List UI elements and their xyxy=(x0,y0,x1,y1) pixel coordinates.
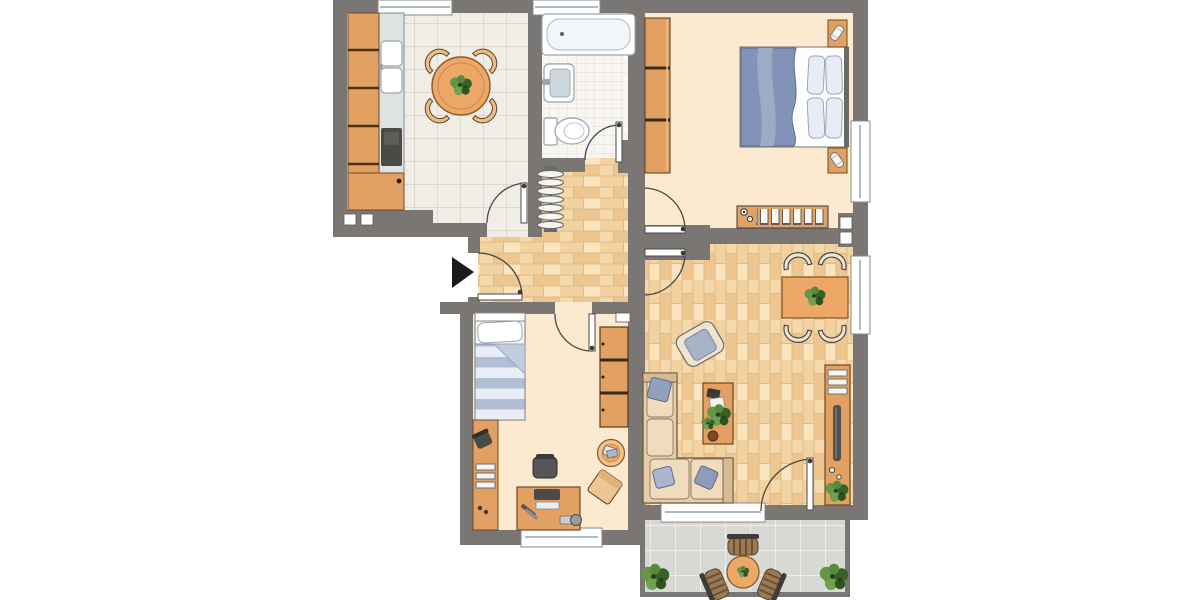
wall-balcony-right xyxy=(845,520,850,597)
bowl xyxy=(708,431,718,441)
niche-kitchen-2 xyxy=(361,214,373,225)
wall-balcony-bottom xyxy=(640,592,850,597)
bed-headboard xyxy=(475,313,525,321)
hallway-floor-lower xyxy=(478,237,630,302)
keyboard xyxy=(536,502,559,509)
radiator xyxy=(737,206,828,228)
sofa-cushion xyxy=(652,466,675,489)
wall-kitchen-left xyxy=(333,0,347,232)
bedroom-wardrobe xyxy=(645,18,670,173)
monitor xyxy=(534,489,560,500)
entrance-arrow xyxy=(452,257,474,288)
wash-basin xyxy=(542,64,574,102)
childrens-wardrobe xyxy=(600,327,628,427)
corner-cabinet xyxy=(348,173,404,210)
toilet xyxy=(544,118,589,145)
office-chair xyxy=(533,454,557,478)
wall-kitchen-bottom-right xyxy=(433,223,487,237)
living-room-side-window xyxy=(851,256,870,334)
niche-chimney-1 xyxy=(840,217,852,229)
shelf-slats xyxy=(476,464,495,488)
childrens-room-window xyxy=(521,528,602,547)
desk-lamp-base xyxy=(571,515,582,526)
niche-kitchen-1 xyxy=(344,214,356,225)
wall-bedroom-living-divider xyxy=(710,228,853,244)
tv xyxy=(833,405,841,461)
living-room-bottom-window xyxy=(661,503,765,522)
wall-shelf-unit xyxy=(471,420,498,530)
wall-balcony-left xyxy=(640,520,645,597)
bedroom-window xyxy=(851,121,870,202)
double-bed xyxy=(740,47,849,147)
side-table xyxy=(598,440,625,467)
headboard xyxy=(844,47,849,147)
wall-childrens-top-right xyxy=(592,302,628,314)
sofa-armrest xyxy=(723,458,733,503)
coat-rack xyxy=(538,166,564,232)
coffee-table xyxy=(701,383,733,444)
wall-entrance-upper xyxy=(468,237,480,253)
niche-childrens xyxy=(616,313,630,322)
bathtub xyxy=(542,14,635,55)
sideboard-tv xyxy=(825,365,850,505)
page xyxy=(0,0,1200,600)
sofa-cushion xyxy=(647,377,672,402)
childrens-door-threshold xyxy=(555,302,592,314)
floor-plan xyxy=(0,0,1200,600)
magazine xyxy=(606,449,617,458)
wall-childrens-left xyxy=(460,310,473,545)
balcony-chair-north xyxy=(727,534,759,555)
niche-chimney-2 xyxy=(840,232,852,244)
kitchen-door-threshold xyxy=(487,223,528,237)
single-bed xyxy=(475,313,525,420)
bathroom-window xyxy=(533,0,600,15)
stove-detail xyxy=(384,132,399,145)
cabinet-handle xyxy=(397,179,402,184)
bed-pillow xyxy=(478,321,523,343)
wall-childrens-top-left xyxy=(440,302,555,314)
